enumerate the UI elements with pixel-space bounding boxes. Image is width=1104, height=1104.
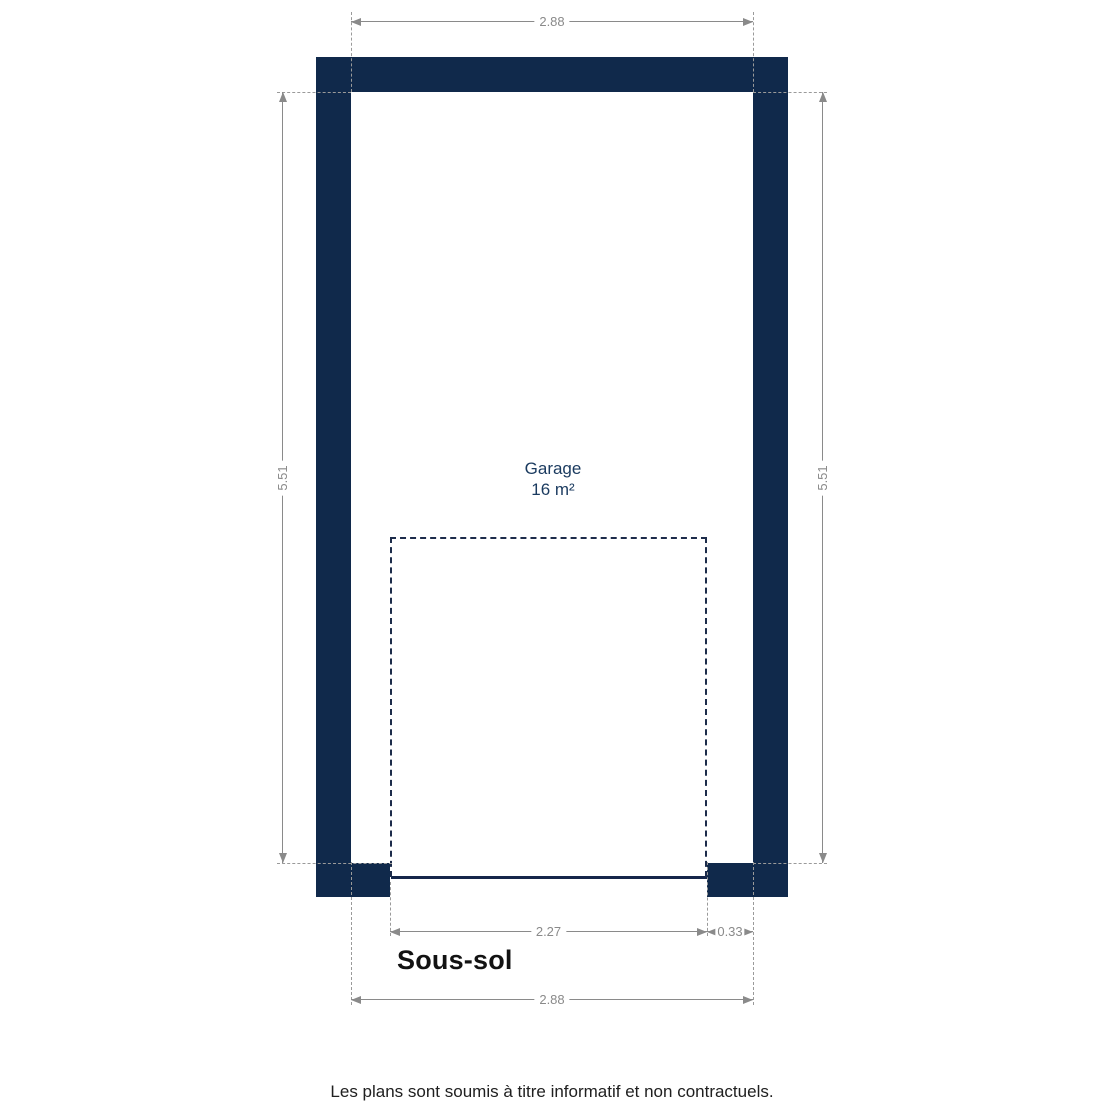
dim-label-garage-door-width: 2.27	[531, 924, 566, 940]
dimension-top-width: 2.88	[351, 21, 753, 22]
parking-space-outline	[390, 537, 707, 877]
wall-top	[316, 57, 788, 92]
dim-arrow-left-icon	[351, 996, 361, 1004]
room-name: Garage	[453, 458, 653, 479]
extension-line	[753, 12, 754, 92]
dim-arrow-down-icon	[279, 853, 287, 863]
room-label-garage: Garage 16 m²	[453, 458, 653, 500]
extension-line	[707, 862, 708, 936]
wall-bottom-right	[707, 863, 788, 897]
dimension-garage-door-width: 2.27	[390, 931, 707, 932]
extension-line	[753, 863, 827, 864]
extension-line	[277, 92, 351, 93]
dim-label-wall-offset: 0.33	[715, 924, 744, 940]
wall-bottom-left	[316, 863, 390, 897]
disclaimer-text: Les plans sont soumis à titre informatif…	[0, 1082, 1104, 1102]
dim-arrow-up-icon	[279, 92, 287, 102]
dimension-wall-offset: 0.33	[707, 931, 753, 932]
dim-arrow-left-icon	[390, 928, 400, 936]
dim-label-left-height: 5.51	[275, 460, 291, 495]
dimension-bottom-width: 2.88	[351, 999, 753, 1000]
dimension-left-height: 5.51	[282, 92, 283, 863]
extension-line	[277, 863, 392, 864]
extension-line	[351, 862, 352, 1005]
wall-left	[316, 57, 351, 897]
extension-line	[753, 92, 827, 93]
dim-arrow-up-icon	[819, 92, 827, 102]
wall-right	[753, 57, 788, 897]
dimension-right-height: 5.51	[822, 92, 823, 863]
floor-plan-canvas: 2.88 2.88 5.51 5.51 2.27 0.33 Garage 16 …	[0, 0, 1104, 1104]
dim-arrow-left-icon	[351, 18, 361, 26]
dim-label-bottom-width: 2.88	[534, 992, 569, 1008]
dim-label-top-width: 2.88	[534, 14, 569, 30]
dim-arrow-right-icon	[697, 928, 707, 936]
extension-line	[753, 862, 754, 1005]
dim-arrow-right-icon	[743, 996, 753, 1004]
dim-arrow-right-icon	[743, 18, 753, 26]
dim-arrow-down-icon	[819, 853, 827, 863]
floor-title: Sous-sol	[397, 945, 513, 976]
dim-label-right-height: 5.51	[815, 460, 831, 495]
room-area: 16 m²	[453, 479, 653, 500]
